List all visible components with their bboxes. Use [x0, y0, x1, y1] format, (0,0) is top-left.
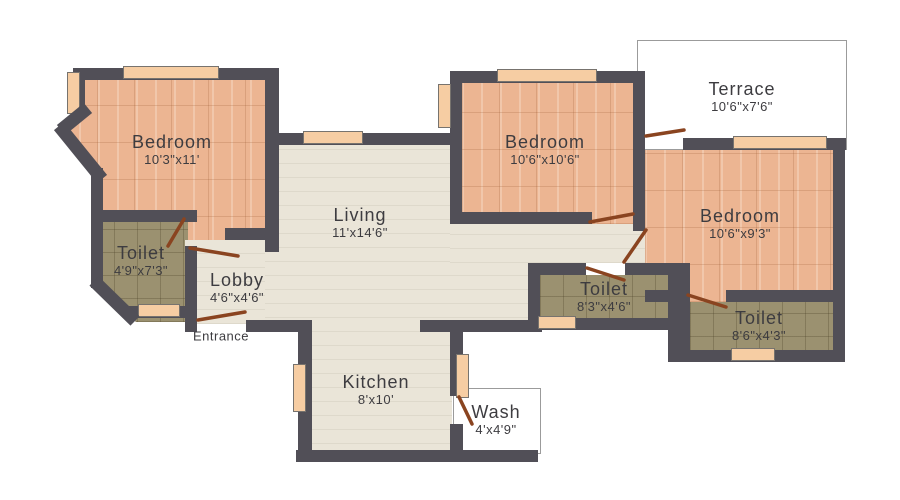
room-name: Kitchen: [342, 372, 409, 392]
window: [303, 131, 363, 144]
window: [123, 66, 219, 79]
window: [138, 304, 180, 317]
room-dims: 10'6"x9'3": [700, 227, 780, 242]
wall-segment: [265, 68, 279, 252]
wall-segment: [625, 263, 670, 275]
room-dims: 10'3"x11': [132, 153, 212, 168]
room-label-bedroom-top-left: Bedroom 10'3"x11': [132, 132, 212, 168]
room-dims: 4'9"x7'3": [114, 264, 168, 279]
window: [67, 72, 80, 114]
wall-segment: [91, 210, 103, 288]
wall-segment: [420, 320, 542, 332]
wall-segment: [833, 138, 845, 362]
wall-segment: [450, 212, 592, 224]
window: [733, 136, 827, 149]
room-dims: 8'6"x4'3": [732, 329, 786, 344]
floor-plan: Bedroom 10'3"x11' Toilet 4'9"x7'3" Lobby…: [0, 0, 900, 500]
room-label-lobby: Lobby 4'6"x4'6": [210, 270, 264, 306]
room-label-bedroom-right: Bedroom 10'6"x9'3": [700, 206, 780, 242]
wall-segment: [633, 71, 645, 231]
room-name: Toilet: [114, 243, 168, 263]
room-name: Wash: [471, 402, 520, 422]
room-label-wash: Wash 4'x4'9": [471, 402, 520, 438]
wall-segment: [296, 450, 538, 462]
room-dims: 8'x10': [342, 393, 409, 408]
room-label-bedroom-middle: Bedroom 10'6"x10'6": [505, 132, 585, 168]
window: [731, 348, 775, 361]
room-label-living: Living 11'x14'6": [332, 205, 388, 241]
room-name: Bedroom: [132, 132, 212, 152]
wall-segment: [225, 228, 279, 240]
room-name: Living: [332, 205, 388, 225]
window: [538, 316, 576, 329]
window: [438, 84, 451, 128]
room-dims: 4'6"x4'6": [210, 291, 264, 306]
wall-segment: [185, 210, 197, 222]
room-label-toilet-left: Toilet 4'9"x7'3": [114, 243, 168, 279]
wall-segment: [185, 246, 197, 332]
room-dims: 4'x4'9": [471, 423, 520, 438]
wall-segment: [450, 71, 462, 224]
entrance-label: Entrance: [193, 329, 249, 344]
room-name: Toilet: [577, 279, 631, 299]
room-label-toilet-right: Toilet 8'6"x4'3": [732, 308, 786, 344]
room-dims: 8'3"x4'6": [577, 300, 631, 315]
window: [456, 354, 469, 398]
room-label-terrace: Terrace 10'6"x7'6": [708, 79, 775, 115]
corridor-floor: [450, 222, 646, 263]
wall-segment: [668, 263, 690, 362]
room-label-kitchen: Kitchen 8'x10': [342, 372, 409, 408]
room-name: Lobby: [210, 270, 264, 290]
room-dims: 10'6"x7'6": [708, 100, 775, 115]
wall-segment: [528, 263, 586, 275]
room-name: Toilet: [732, 308, 786, 328]
room-label-toilet-center: Toilet 8'3"x4'6": [577, 279, 631, 315]
room-name: Terrace: [708, 79, 775, 99]
room-name: Bedroom: [700, 206, 780, 226]
wall-segment: [91, 210, 188, 222]
wall-segment: [450, 424, 463, 462]
wall-segment: [265, 133, 462, 145]
window: [497, 69, 597, 82]
room-dims: 10'6"x10'6": [505, 153, 585, 168]
room-dims: 11'x14'6": [332, 226, 388, 241]
window: [293, 364, 306, 412]
wall-segment: [726, 290, 836, 302]
room-name: Bedroom: [505, 132, 585, 152]
